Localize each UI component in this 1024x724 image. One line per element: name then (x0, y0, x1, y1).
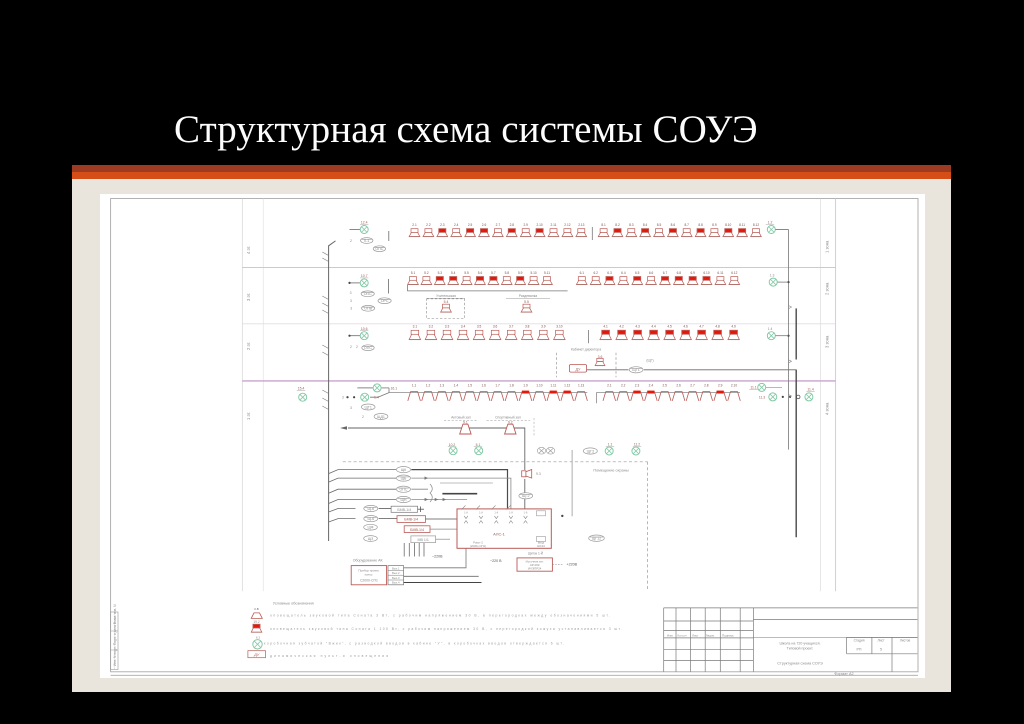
svg-text:5.11: 5.11 (544, 271, 550, 275)
svg-text:1 зона: 1 зона (825, 240, 830, 253)
svg-text:3.5: 3.5 (477, 325, 482, 329)
svg-text:ОПС: ОПС (364, 292, 372, 296)
svg-text:4.2: 4.2 (619, 325, 624, 329)
svg-text:ОРС: ОРС (381, 299, 389, 303)
svg-text:9.1: 9.1 (463, 420, 468, 424)
svg-text:+220В: +220В (567, 563, 578, 567)
svg-text:ЩБ: ЩБ (401, 477, 407, 481)
svg-text:11.1: 11.1 (750, 386, 756, 390)
svg-text:Щ-6: Щ-6 (368, 517, 375, 521)
svg-text:6.9: 6.9 (690, 271, 695, 275)
svg-text:ШС24: ШС24 (537, 544, 545, 548)
svg-text:2.4: 2.4 (454, 223, 459, 227)
svg-text:6.6: 6.6 (649, 271, 654, 275)
svg-text:Инв. N подл. Подп. и дата: Инв. N подл. Подп. и дата Взам. инв. N (113, 604, 117, 666)
svg-text:ДУ: ДУ (253, 653, 260, 657)
svg-text:10.6: 10.6 (361, 327, 368, 331)
svg-text:3: 3 (350, 299, 352, 303)
svg-text:11.3: 11.3 (759, 395, 765, 399)
svg-text:5.2: 5.2 (424, 271, 429, 275)
svg-text:ЩГ12: ЩГ12 (592, 537, 601, 541)
svg-text:Щ-6: Щ-6 (368, 507, 375, 511)
svg-text:1.9: 1.9 (523, 384, 528, 388)
svg-text:ЩК: ЩК (401, 468, 407, 472)
svg-text:ЩН: ЩН (401, 498, 407, 502)
svg-text:1.5: 1.5 (468, 384, 473, 388)
svg-text:ЩД1: ЩД1 (377, 415, 385, 419)
svg-text:4.7: 4.7 (699, 325, 704, 329)
svg-text:ИVЭПР24: ИVЭПР24 (528, 566, 542, 570)
svg-text:Подпись: Подпись (722, 633, 734, 637)
svg-text:1.3: 1.3 (440, 384, 445, 388)
svg-text:19.2: 19.2 (253, 620, 259, 624)
svg-text:ЩЗ: ЩЗ (368, 537, 374, 541)
svg-text:2.6: 2.6 (676, 384, 681, 388)
svg-text:с.в: с.в (254, 607, 258, 611)
svg-text:1 эт.: 1 эт. (246, 412, 251, 420)
svg-text:Щиток 1-Й: Щиток 1-Й (528, 552, 544, 556)
svg-text:8.11: 8.11 (739, 223, 745, 227)
svg-text:№док.: №док. (706, 633, 715, 637)
svg-text:2.9: 2.9 (523, 223, 528, 227)
svg-text:Лист: Лист (878, 639, 885, 643)
svg-text:3.1: 3.1 (413, 325, 418, 329)
svg-text:6.3: 6.3 (256, 636, 261, 640)
svg-text:3 эт.: 3 эт. (246, 293, 251, 301)
svg-text:Листов: Листов (900, 639, 911, 643)
svg-text:Изм.: Изм. (667, 633, 674, 637)
svg-text:1.8: 1.8 (509, 384, 514, 388)
svg-text:Раздевалка: Раздевалка (519, 294, 538, 298)
svg-text:2.5: 2.5 (662, 384, 667, 388)
svg-text:10.2: 10.2 (449, 443, 456, 447)
svg-text:2: 2 (350, 345, 352, 349)
svg-text:2.9: 2.9 (718, 384, 723, 388)
svg-text:1.4: 1.4 (768, 327, 773, 331)
svg-text:4 эт.: 4 эт. (246, 246, 251, 254)
svg-text:Спортивный зал: Спортивный зал (495, 415, 521, 419)
svg-text:9.3: 9.3 (536, 472, 541, 476)
svg-text:1.7: 1.7 (495, 384, 500, 388)
svg-text:(2000х-СП1): (2000х-СП1) (470, 544, 486, 548)
svg-text:2.8: 2.8 (704, 384, 709, 388)
svg-text:АЛС-1: АЛС-1 (493, 531, 506, 536)
svg-text:4.9: 4.9 (731, 325, 736, 329)
svg-text:Учительская: Учительская (436, 294, 456, 298)
svg-text:3.9: 3.9 (541, 325, 546, 329)
svg-text:5.8: 5.8 (505, 271, 510, 275)
svg-text:Структурная схема СОУЭ: Структурная схема СОУЭ (777, 661, 823, 665)
svg-text:коробочная зубчатой "Вжик", с: коробочная зубчатой "Вжик", с разводкой … (264, 641, 564, 645)
svg-text:2.7: 2.7 (690, 384, 695, 388)
svg-text:Типовой проект.: Типовой проект. (787, 646, 814, 650)
svg-text:1-й: 1-й (524, 511, 528, 515)
svg-text:6.11: 6.11 (717, 271, 723, 275)
svg-text:~220 В: ~220 В (490, 559, 502, 563)
svg-text:3.8: 3.8 (525, 325, 530, 329)
svg-text:2.8: 2.8 (510, 223, 515, 227)
svg-text:8.5: 8.5 (657, 223, 662, 227)
svg-text:6.1: 6.1 (580, 271, 585, 275)
svg-text:4.4: 4.4 (651, 325, 656, 329)
svg-text:2 эт.: 2 эт. (246, 342, 251, 350)
svg-text:5.1: 5.1 (476, 443, 481, 447)
svg-text:3.4: 3.4 (461, 325, 466, 329)
svg-text:Вых.1: Вых.1 (392, 566, 400, 570)
svg-text:4.5: 4.5 (667, 325, 672, 329)
svg-text:2.6: 2.6 (482, 223, 487, 227)
svg-text:БМВ-1/4: БМВ-1/4 (410, 528, 424, 532)
svg-text:16.1: 16.1 (391, 386, 398, 390)
svg-text:3: 3 (350, 306, 352, 310)
svg-text:2.3: 2.3 (440, 223, 445, 227)
svg-text:2.10: 2.10 (731, 384, 737, 388)
svg-text:5.1: 5.1 (411, 271, 416, 275)
svg-text:1.1: 1.1 (608, 443, 613, 447)
svg-text:0-1: 0-1 (364, 239, 369, 243)
svg-text:3: 3 (342, 396, 344, 400)
svg-text:6.3: 6.3 (607, 271, 612, 275)
svg-text:1-й: 1-й (509, 511, 513, 515)
svg-text:4.3: 4.3 (635, 325, 640, 329)
svg-text:2: 2 (362, 415, 364, 419)
svg-text:РП: РП (857, 648, 862, 652)
svg-text:5: 5 (880, 648, 882, 652)
svg-text:10.7: 10.7 (361, 274, 368, 278)
svg-text:Вых.3: Вых.3 (392, 576, 400, 580)
svg-text:2.5: 2.5 (468, 223, 473, 227)
svg-text:3.10: 3.10 (556, 325, 562, 329)
svg-text:контр.: контр. (365, 572, 374, 576)
svg-text:1.11: 1.11 (550, 384, 556, 388)
svg-text:3.6: 3.6 (493, 325, 498, 329)
svg-text:6.5: 6.5 (635, 271, 640, 275)
svg-text:ОПС: ОПС (400, 488, 408, 492)
svg-text:8.8: 8.8 (698, 223, 703, 227)
svg-text:Помещение охраны: Помещение охраны (593, 469, 628, 473)
svg-text:2.1: 2.1 (412, 223, 417, 227)
svg-text:ЩФ: ЩФ (367, 526, 373, 530)
svg-text:ОПС: ОПС (364, 346, 372, 350)
svg-text:2.1: 2.1 (607, 384, 612, 388)
svg-text:БМВ-1/4: БМВ-1/4 (397, 508, 411, 512)
svg-text:5.4: 5.4 (451, 271, 456, 275)
svg-text:8.4: 8.4 (643, 223, 648, 227)
svg-text:динамическая пульт-я оповещени: динамическая пульт-я оповещения (270, 654, 388, 658)
svg-text:МВ 1/1: МВ 1/1 (418, 538, 429, 542)
svg-text:Стадия: Стадия (854, 639, 865, 643)
svg-text:оповещатель звуковой типа Сона: оповещатель звуковой типа Соната 3 Вт, с… (270, 614, 610, 618)
svg-text:1.4: 1.4 (454, 384, 459, 388)
svg-text:4.6: 4.6 (683, 325, 688, 329)
svg-text:1.6: 1.6 (481, 384, 486, 388)
svg-text:Вых.4: Вых.4 (392, 581, 400, 585)
svg-text:3.7: 3.7 (509, 325, 514, 329)
svg-text:8.9: 8.9 (712, 223, 717, 227)
svg-text:6.4: 6.4 (621, 271, 626, 275)
svg-text:8.6: 8.6 (671, 223, 676, 227)
svg-text:Актовый зал: Актовый зал (451, 415, 471, 419)
svg-text:4 зона: 4 зона (825, 402, 830, 415)
svg-text:2.11: 2.11 (551, 223, 557, 227)
svg-text:БМВ-1/4: БМВ-1/4 (404, 518, 418, 522)
svg-text:Лист: Лист (692, 633, 699, 637)
svg-text:6.8: 6.8 (677, 271, 682, 275)
svg-text:Вых.2: Вых.2 (392, 571, 400, 575)
svg-text:Формат А2: Формат А2 (834, 672, 853, 676)
svg-text:5.4: 5.4 (444, 300, 449, 304)
svg-text:5.5: 5.5 (464, 271, 469, 275)
svg-text:ЩГ3: ЩГ3 (587, 449, 594, 453)
svg-text:6.10: 6.10 (703, 271, 709, 275)
svg-text:3: 3 (350, 291, 352, 295)
svg-text:1.2: 1.2 (768, 221, 773, 225)
svg-text:2 зона: 2 зона (825, 282, 830, 295)
svg-text:5.10: 5.10 (530, 271, 536, 275)
svg-text:1.12: 1.12 (564, 384, 570, 388)
svg-text:2.4: 2.4 (649, 384, 654, 388)
svg-text:Оборудование АК: Оборудование АК (353, 559, 384, 563)
svg-text:5.3: 5.3 (438, 271, 443, 275)
svg-text:2: 2 (356, 345, 358, 349)
svg-text:1.13: 1.13 (578, 384, 584, 388)
svg-text:1-й: 1-й (464, 511, 468, 515)
svg-text:ЩГ1: ЩГ1 (365, 405, 372, 409)
svg-text:8.2: 8.2 (615, 223, 620, 227)
svg-text:2.3: 2.3 (635, 384, 640, 388)
svg-text:9.2: 9.2 (508, 420, 513, 424)
svg-text:2.2: 2.2 (621, 384, 626, 388)
svg-text:3: 3 (350, 406, 352, 410)
svg-text:5.5: 5.5 (524, 300, 529, 304)
svg-text:5.9: 5.9 (518, 271, 523, 275)
svg-text:ЩГ1: ЩГ1 (632, 368, 639, 372)
svg-text:1.10: 1.10 (536, 384, 542, 388)
svg-text:С2000-СП1: С2000-СП1 (360, 578, 378, 582)
svg-text:ЩГ2: ЩГ2 (522, 494, 529, 498)
svg-text:ОПВ: ОПВ (364, 307, 372, 311)
svg-text:Школа на 720 учащихся.: Школа на 720 учащихся. (779, 642, 820, 646)
svg-text:1.2: 1.2 (426, 384, 431, 388)
svg-text:Кол.уч: Кол.уч (678, 633, 687, 637)
svg-text:12.4: 12.4 (361, 221, 368, 225)
svg-text:3.2: 3.2 (429, 325, 434, 329)
svg-text:ОПС: ОПС (375, 247, 383, 251)
svg-text:15.4: 15.4 (298, 387, 305, 391)
svg-text:4.8: 4.8 (715, 325, 720, 329)
svg-text:1.3: 1.3 (770, 274, 775, 278)
svg-text:1-й: 1-й (494, 511, 498, 515)
svg-text:8.12: 8.12 (753, 223, 759, 227)
svg-text:5.6: 5.6 (478, 271, 483, 275)
svg-text:2.10: 2.10 (536, 223, 542, 227)
svg-text:оповещатель звуковой типа Сона: оповещатель звуковой типа Соната 1 100 В… (270, 627, 622, 631)
svg-text:8.10: 8.10 (725, 223, 731, 227)
svg-text:6.7: 6.7 (663, 271, 668, 275)
svg-text:2.7: 2.7 (496, 223, 501, 227)
svg-text:1.1: 1.1 (412, 384, 417, 388)
svg-text:11.2: 11.2 (634, 443, 640, 447)
svg-text:8.1: 8.1 (601, 223, 606, 227)
svg-text:4.1: 4.1 (603, 325, 608, 329)
svg-text:6.12: 6.12 (731, 271, 737, 275)
svg-text:5.7: 5.7 (491, 271, 496, 275)
svg-text:1-й: 1-й (479, 511, 483, 515)
svg-text:2: 2 (350, 239, 352, 243)
svg-text:3.3: 3.3 (445, 325, 450, 329)
svg-text:Кабинет директора: Кабинет директора (571, 348, 601, 352)
svg-text:6.2: 6.2 (593, 271, 598, 275)
svg-text:2.12: 2.12 (564, 223, 570, 227)
svg-text:8.3: 8.3 (629, 223, 634, 227)
svg-text:8.7: 8.7 (684, 223, 689, 227)
svg-text:2.13: 2.13 (578, 223, 584, 227)
svg-text:11.4: 11.4 (807, 388, 813, 392)
svg-text:3 зона: 3 зона (825, 335, 830, 348)
svg-text:~220В: ~220В (432, 554, 443, 558)
svg-text:2.2: 2.2 (426, 223, 431, 227)
svg-text:ДУ: ДУ (576, 367, 581, 371)
svg-text:(ЩГ): (ЩГ) (646, 359, 653, 363)
svg-text:Условные обозначения: Условные обозначения (273, 602, 314, 606)
